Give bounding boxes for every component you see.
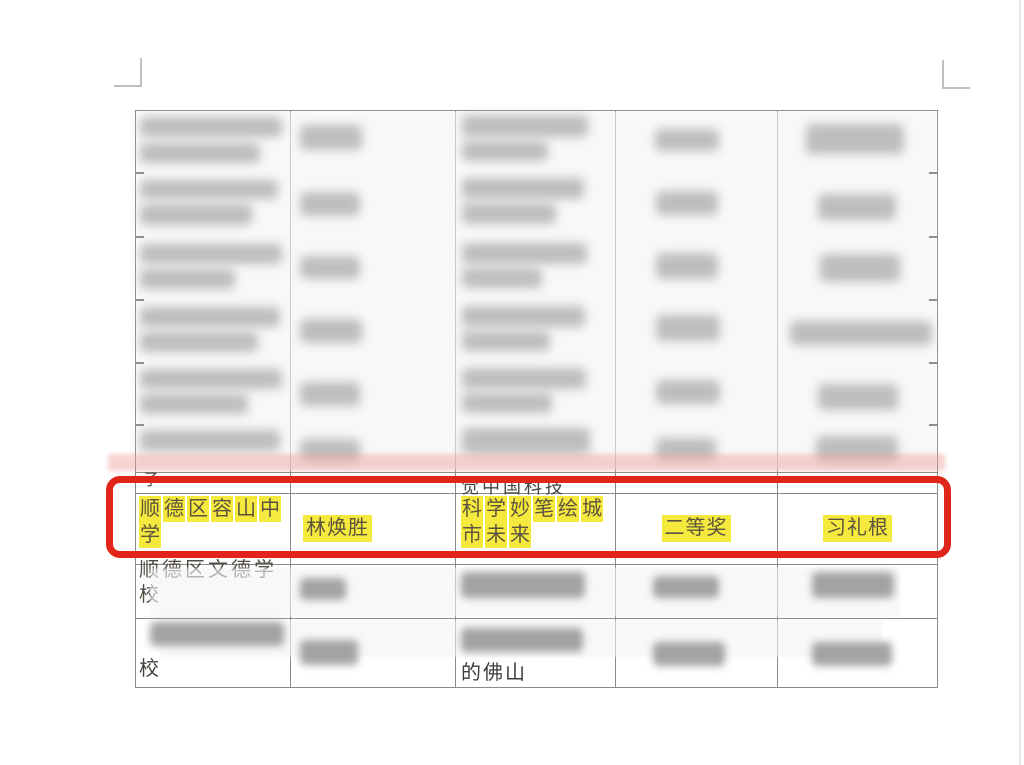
blurred-text-smudge [656,380,720,404]
highlighted-char: 绘 [557,496,579,522]
highlighted-char: 笔 [533,496,555,522]
blurred-text-smudge [300,319,362,343]
highlighted-char: 区 [187,496,209,522]
table-row-border-stub [135,236,144,238]
redaction-blur-block [137,112,936,470]
blurred-text-smudge [653,642,725,666]
blurred-text-smudge [140,430,280,451]
highlighted-char: 顺 [139,496,161,522]
blurred-text-smudge [812,642,892,666]
blurred-text-smudge [140,244,282,264]
blurred-text-smudge [140,143,260,163]
blurred-text-smudge [812,572,894,598]
blurred-text-smudge [300,125,362,150]
table-cell-fragment-school-bottom[interactable]: 校 [139,652,162,681]
blurred-text-smudge [656,253,718,279]
blurred-text-smudge [462,141,548,161]
blurred-text-smudge [461,628,583,652]
highlighted-char: 来 [509,522,531,548]
highlighted-char: 科 [461,496,483,522]
highlighted-char: 市 [461,522,483,548]
highlighted-char: 学 [139,522,161,548]
blurred-text-smudge [806,124,904,154]
blurred-text-smudge [461,572,585,598]
blurred-red-annotation-band [108,454,945,471]
document-page[interactable]: 子 觉中国科技 顺德区容山中学 林焕胜 科学妙笔绘城市未来 二等奖 习礼根 顺德… [0,0,1024,765]
page-edge-line [1019,0,1021,765]
table-row-border [135,110,938,111]
blurred-text-smudge [820,254,900,282]
blurred-text-smudge [462,428,590,454]
table-row-border-stub [135,172,144,174]
table-cell-award[interactable]: 二等奖 [616,493,776,564]
table-row-border-stub [135,362,144,364]
table-row-border [135,618,938,619]
table-row-border-stub [929,172,938,174]
blurred-text-smudge [653,576,719,598]
table-row-border-stub [929,236,938,238]
highlighted-char: 中 [259,496,281,522]
table-row-border-stub [929,299,938,301]
table-column-border [937,110,938,687]
blurred-text-smudge [300,192,360,216]
blurred-text-smudge [150,622,284,646]
table-cell-fragment-work-bottom[interactable]: 的佛山 [461,656,527,685]
blurred-text-smudge [462,268,542,288]
crop-mark-top-left-horizontal [114,85,142,87]
highlighted-char: 城 [581,496,603,522]
blurred-text-smudge [462,331,550,351]
table-cell-school[interactable]: 顺德区容山中学 [137,495,290,564]
blurred-text-smudge [300,640,358,665]
crop-mark-top-right-horizontal [942,87,970,89]
highlighted-char: 容 [211,496,233,522]
highlighted-char: 未 [485,522,507,548]
blurred-text-smudge [818,194,896,220]
highlighted-char: 妙 [509,496,531,522]
blurred-text-smudge [140,117,282,137]
blurred-text-smudge [300,578,346,600]
highlighted-char: 学 [485,496,507,522]
blurred-text-smudge [462,243,587,264]
table-cell-participant[interactable]: 林焕胜 [291,493,454,564]
blurred-text-smudge [818,384,898,410]
blurred-text-smudge [300,256,360,279]
blurred-text-smudge [462,393,552,413]
blurred-text-smudge [656,191,718,215]
blurred-text-smudge [462,306,585,327]
blurred-text-smudge [462,368,586,389]
highlighted-char: 德 [163,496,185,522]
blurred-text-smudge [655,129,719,151]
blurred-text-smudge [140,180,278,199]
blurred-text-smudge [790,321,932,345]
table-row-border [135,687,938,688]
crop-mark-top-left-vertical [140,58,142,87]
blurred-text-smudge [140,369,282,389]
blurred-text-smudge [462,203,556,224]
highlighted-char: 山 [235,496,257,522]
blurred-text-smudge [140,307,280,327]
blurred-text-smudge [140,204,252,225]
blurred-text-smudge [656,315,720,341]
table-row-border-stub [135,299,144,301]
blurred-text-smudge [300,382,360,406]
table-row-border-stub [135,424,144,426]
blurred-text-smudge [462,115,588,137]
blurred-text-smudge [462,178,584,199]
table-row-border-stub [929,424,938,426]
table-column-border [135,110,136,687]
table-cell-instructor[interactable]: 习礼根 [778,493,937,564]
blurred-text-smudge [140,269,235,289]
blurred-text-smudge [140,332,258,352]
table-cell-work-title[interactable]: 科学妙笔绘城市未来 [459,495,614,564]
blurred-text-smudge [140,394,248,414]
crop-mark-top-right-vertical [942,60,944,89]
table-row-border-stub [929,362,938,364]
